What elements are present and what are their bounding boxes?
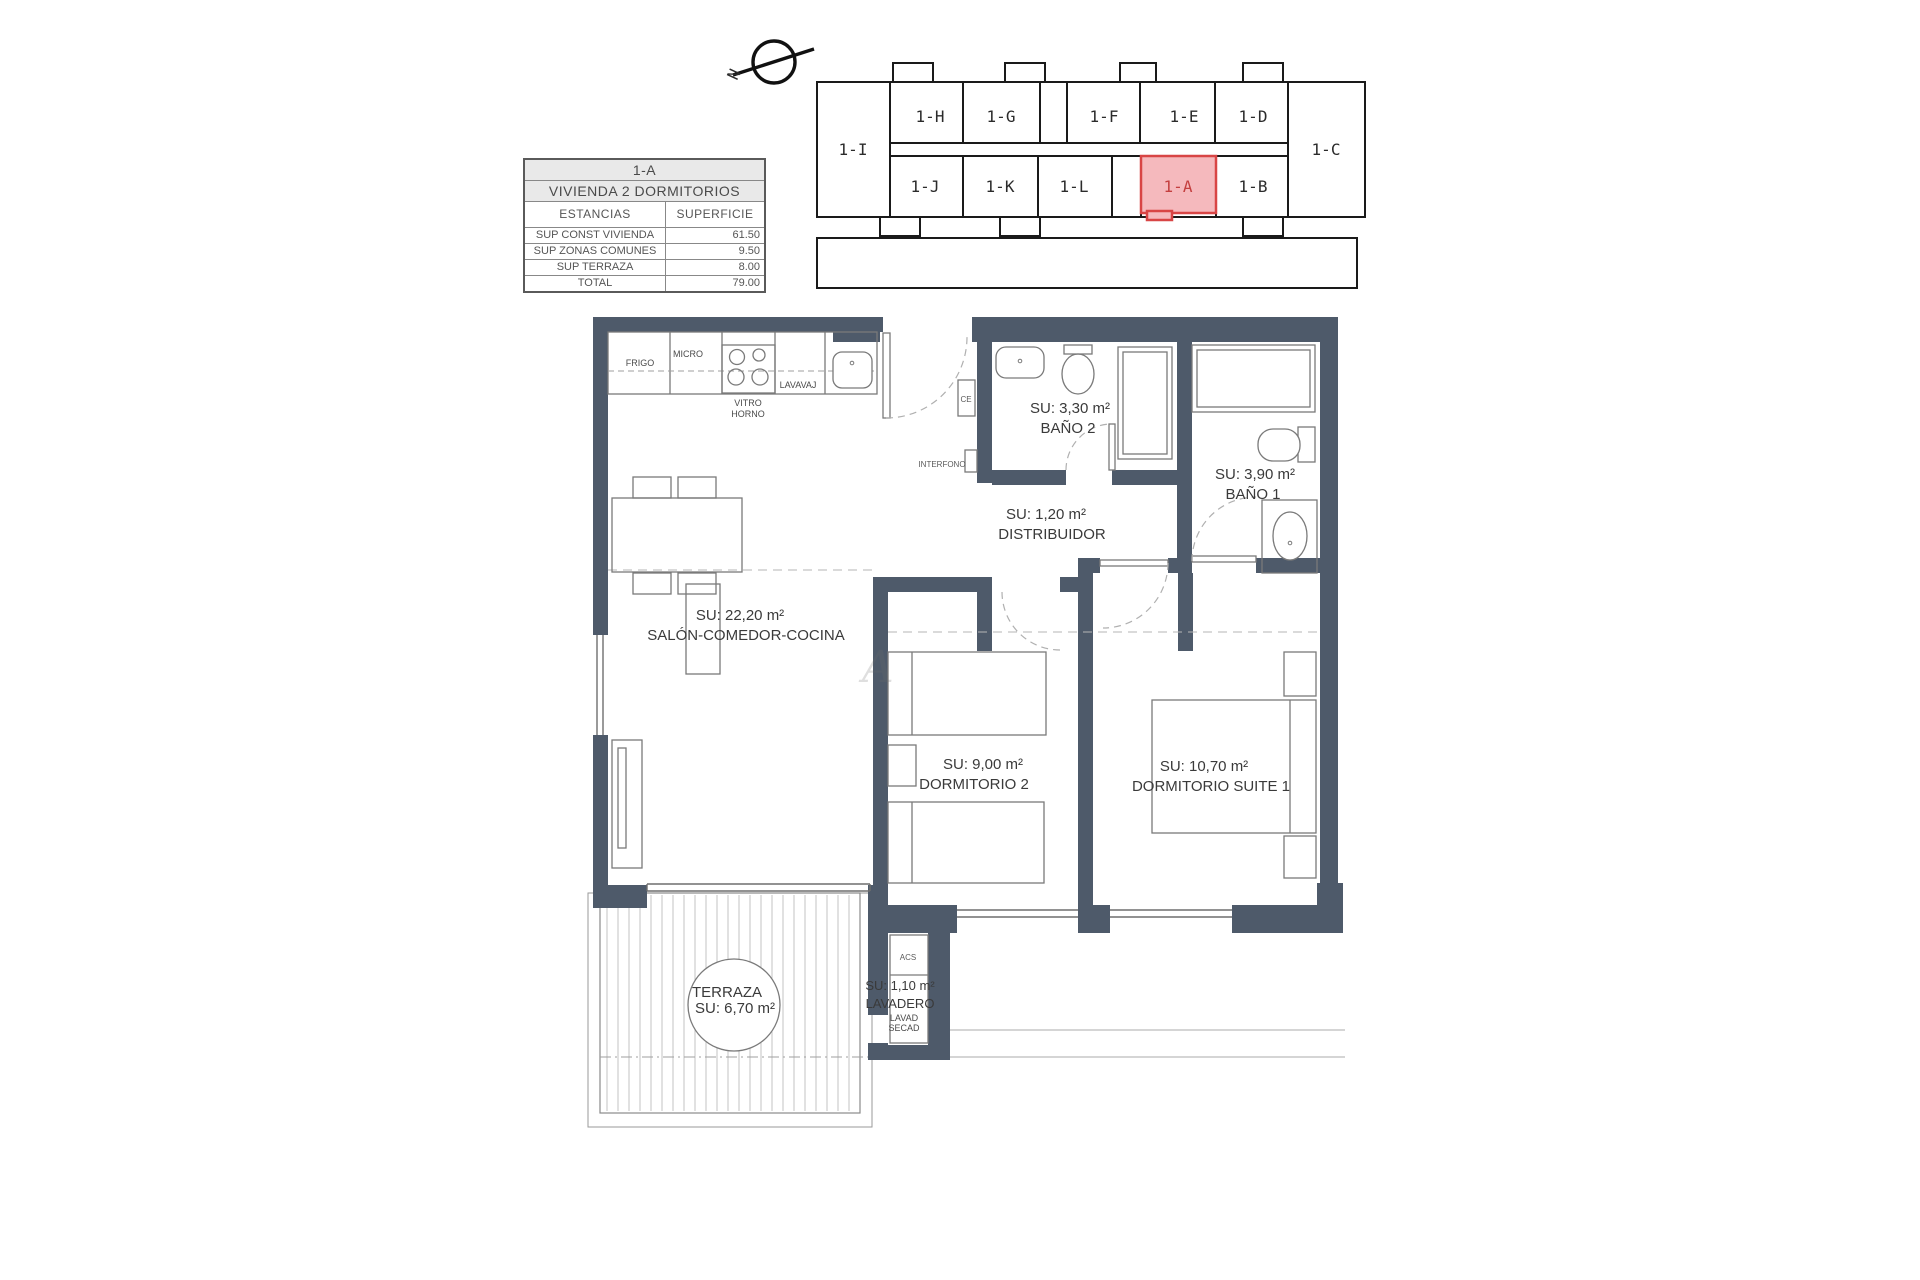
- dining-table: [612, 498, 742, 572]
- exterior-ground-lines: [950, 1030, 1345, 1057]
- wall-segment: [1078, 905, 1110, 933]
- doors: [883, 333, 1256, 650]
- wall-segment: [888, 577, 992, 592]
- label-bano2-name: BAÑO 2: [1040, 420, 1095, 437]
- living-furniture: [612, 477, 742, 868]
- bano2-door-leaf: [1109, 424, 1115, 470]
- bano1-door-swing-arc: [1192, 497, 1256, 561]
- kitchen-labels: FRIGO MICRO LAVAVAJ VITRO HORNO CE INTER…: [626, 349, 972, 469]
- label-suite-name: DORMITORIO SUITE 1: [1132, 778, 1290, 795]
- toilet-icon: [1062, 345, 1094, 394]
- suite-door-leaf: [1100, 560, 1168, 566]
- keyplan-tab: [1120, 63, 1156, 83]
- label-suite-area: SU: 10,70 m²: [1160, 758, 1248, 775]
- keyplan-tab: [1243, 216, 1283, 236]
- keyplan-tab: [1243, 63, 1283, 83]
- keyplan-unit-label: 1-I: [839, 140, 868, 159]
- wall-segment: [1078, 558, 1093, 905]
- terrace-sliding-door: [647, 884, 870, 891]
- keyplan-outline: [817, 82, 1365, 217]
- floorplan-drawing: N: [0, 0, 1920, 1280]
- keyplan-unit-label: 1-D: [1239, 107, 1268, 126]
- chair: [633, 477, 671, 498]
- label-lavavaj: LAVAVAJ: [780, 380, 817, 390]
- wall-segment: [992, 470, 1066, 485]
- wall-segment: [593, 885, 647, 908]
- keyplan-tab: [1000, 216, 1040, 236]
- keyplan-unit-label-highlighted: 1-A: [1164, 177, 1193, 196]
- keyplan-unit-label: 1-H: [916, 107, 945, 126]
- tv-unit: [612, 740, 642, 868]
- wall-segment: [977, 342, 992, 483]
- wall-segment: [1060, 577, 1078, 592]
- label-dormitorio2-area: SU: 9,00 m²: [943, 756, 1023, 773]
- label-terraza-name: TERRAZA: [692, 984, 762, 1001]
- label-lavadero-name: LAVADERO: [866, 996, 935, 1011]
- label-micro: MICRO: [673, 349, 703, 359]
- wall-segment: [1112, 470, 1180, 485]
- keyplan-unit-label: 1-L: [1060, 177, 1089, 196]
- wall-segment: [1232, 905, 1322, 933]
- wall-segment: [1320, 342, 1338, 905]
- label-acs: ACS: [900, 953, 916, 962]
- keyplan-lower-wing: [817, 238, 1357, 288]
- wall-segment: [873, 577, 888, 905]
- label-distribuidor-name: DISTRIBUIDOR: [998, 526, 1106, 543]
- label-bano2-area: SU: 3,30 m²: [1030, 400, 1110, 417]
- bano1-fixtures: [1192, 345, 1317, 573]
- chair: [678, 477, 716, 498]
- bed-single: [888, 802, 1044, 883]
- label-terraza-area: SU: 6,70 m²: [695, 1000, 775, 1017]
- keyplan-tab: [1005, 63, 1045, 83]
- label-interfono: INTERFONO: [918, 460, 965, 469]
- hob-icon: [722, 345, 775, 393]
- wall-segment: [1177, 342, 1192, 573]
- windows: [597, 635, 1232, 917]
- entry-door-swing-arc: [886, 337, 967, 418]
- wall-segment: [1168, 558, 1192, 573]
- keyplan-unit-label: 1-J: [911, 177, 940, 196]
- keyplan-unit-label: 1-C: [1312, 140, 1341, 159]
- wall-segment: [833, 317, 880, 342]
- keyplan-unit-label: 1-E: [1170, 107, 1199, 126]
- label-bano1-area: SU: 3,90 m²: [1215, 466, 1295, 483]
- nightstand: [1284, 836, 1316, 878]
- floorplan-sheet: 1-A VIVIENDA 2 DORMITORIOS ESTANCIAS SUP…: [0, 0, 1920, 1280]
- watermark-letter: A: [858, 642, 894, 693]
- keyplan-unit-label: 1-K: [986, 177, 1015, 196]
- dormitorio2-door-swing-arc: [1002, 592, 1060, 650]
- label-horno: HORNO: [731, 409, 765, 419]
- keyplan-unit-label: 1-B: [1239, 177, 1268, 196]
- label-bano1-name: BAÑO 1: [1225, 486, 1280, 503]
- label-lavadero-secad: SECAD: [888, 1023, 920, 1033]
- label-ce: CE: [960, 395, 971, 404]
- shower-icon: [1118, 347, 1172, 459]
- keyplan-unit-label: 1-G: [987, 107, 1016, 126]
- label-lavadero-lavad: LAVAD: [890, 1013, 919, 1023]
- label-salon-name: SALÓN-COMEDOR-COCINA: [647, 627, 845, 644]
- nightstand: [1284, 652, 1316, 696]
- key-plan: 1-I 1-H 1-G 1-F 1-E 1-D 1-C 1-J 1-K 1-L …: [817, 63, 1365, 288]
- wall-segment: [593, 735, 608, 885]
- label-dormitorio2-name: DORMITORIO 2: [919, 776, 1029, 793]
- chair: [633, 573, 671, 594]
- keyplan-tab: [893, 63, 933, 83]
- keyplan-unit-label: 1-F: [1090, 107, 1119, 126]
- label-vitro: VITRO: [734, 398, 762, 408]
- north-arrow-icon: N: [723, 41, 814, 83]
- room-labels: SU: 22,20 m² SALÓN-COMEDOR-COCINA SU: 3,…: [647, 400, 1295, 1033]
- bano1-door-leaf: [1192, 556, 1256, 562]
- bed-single: [888, 652, 1046, 735]
- intercom-unit: [965, 450, 977, 472]
- label-distribuidor-area: SU: 1,20 m²: [1006, 506, 1086, 523]
- label-lavadero-area: SU: 1,10 m²: [865, 978, 935, 993]
- toilet-icon: [1258, 427, 1315, 462]
- window-suite: [1110, 910, 1232, 917]
- label-salon-area: SU: 22,20 m²: [696, 607, 784, 624]
- window-living-left: [597, 635, 603, 735]
- shower-tray-icon: [1192, 345, 1315, 412]
- nightstand: [888, 745, 916, 786]
- wall-segment: [1178, 573, 1193, 651]
- label-frigo: FRIGO: [626, 358, 655, 368]
- window-dormitorio2: [957, 910, 1078, 917]
- sink-icon: [996, 347, 1044, 378]
- keyplan-unit-1A-notch: [1147, 211, 1172, 220]
- wall-segment: [972, 317, 1338, 342]
- kitchen-sink-icon: [833, 352, 872, 388]
- wall-segment: [593, 332, 608, 635]
- keyplan-tab: [880, 216, 920, 236]
- entry-door-leaf: [883, 333, 890, 418]
- suite-door-swing-arc: [1103, 563, 1168, 628]
- north-letter: N: [723, 66, 744, 83]
